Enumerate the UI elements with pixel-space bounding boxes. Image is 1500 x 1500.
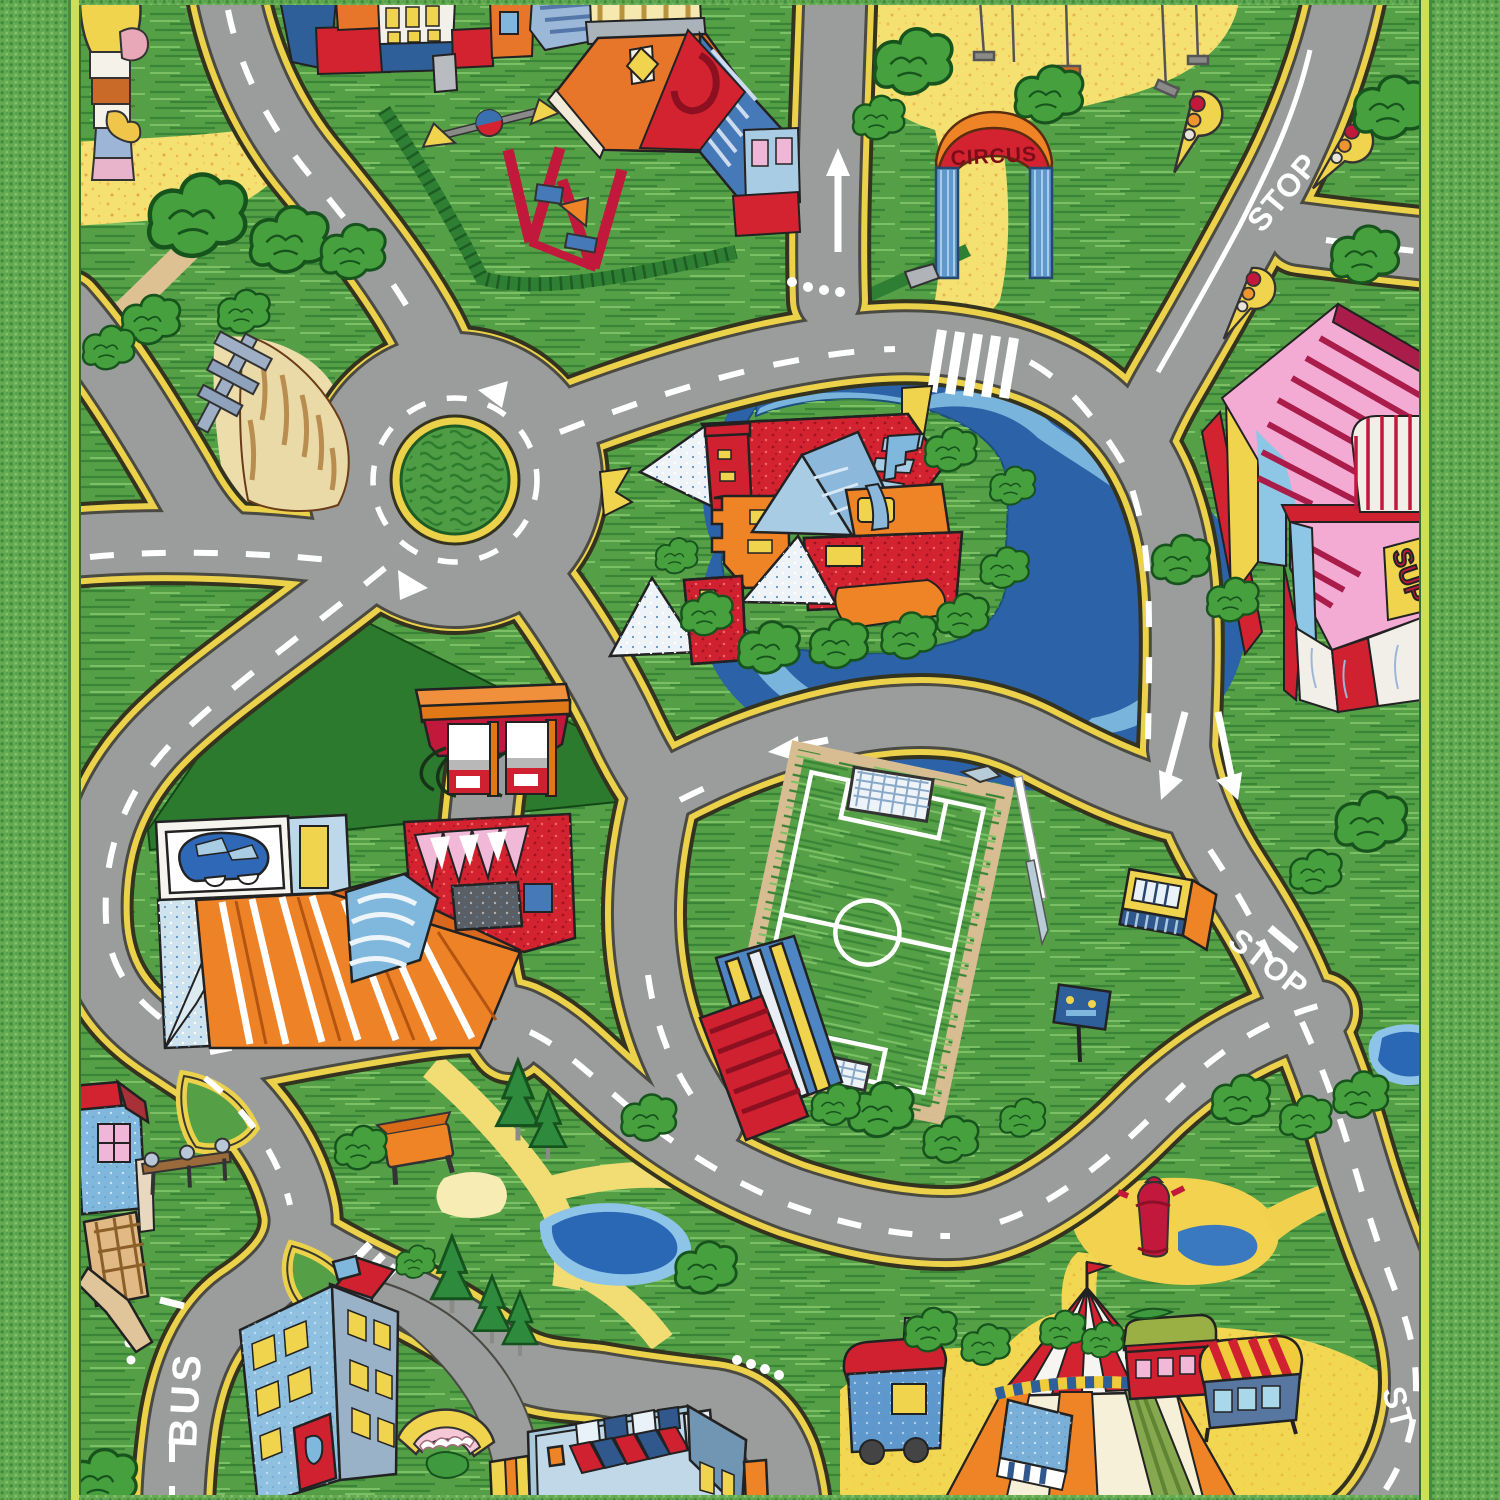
svg-text:BUS: BUS [161, 1350, 210, 1449]
svg-text:CIRCUS: CIRCUS [950, 143, 1038, 170]
